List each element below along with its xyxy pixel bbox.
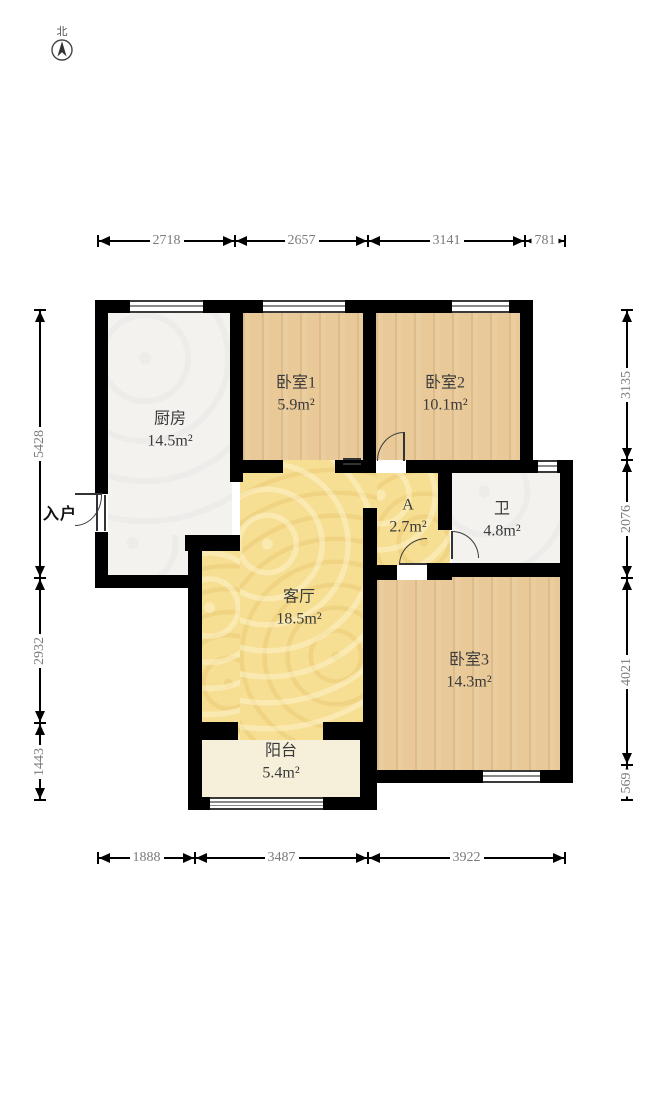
room-bedroom3-area: 14.3m² [446,671,491,693]
dim-arrow [99,236,110,246]
wall-segment [560,460,573,783]
dim-arrow [35,311,45,322]
compass-north-label: 北 [48,25,76,38]
wall-segment [438,473,452,530]
dim-arrow [622,461,632,472]
dim-value: 3135 [619,368,635,402]
wall-segment [427,563,452,580]
dim-tick [564,852,566,864]
dim-value: 1443 [32,745,48,779]
bedroom3-door-gap [397,565,427,580]
room-balcony-name: 阳台 [262,740,299,762]
dim-arrow [35,579,45,590]
room-bedroom2-name: 卧室2 [422,372,467,394]
room-hall-name: A [389,494,426,516]
wall-segment [185,535,240,551]
room-bedroom2-label: 卧室210.1m² [422,372,467,415]
dim-arrow [35,724,45,735]
room-balcony-area: 5.4m² [262,762,299,784]
dim-value: 4021 [619,655,635,689]
dim-arrow [622,448,632,459]
dim-value: 3487 [265,850,299,866]
dim-arrow [622,566,632,577]
dim-arrow [513,236,524,246]
room-bathroom-name: 卫 [483,498,520,520]
dim-value: 2076 [619,502,635,536]
wall-segment [230,300,243,482]
floor-plan-canvas: 北 入户 厨房14.5m²卧室15.9m²卧室210.1m²A2.7m²卫4.8… [0,0,664,1111]
wall-segment [95,575,190,588]
dim-arrow [356,236,367,246]
dim-tick [34,799,46,801]
room-living-area: 18.5m² [276,608,321,630]
dim-arrow [622,753,632,764]
room-kitchen-label: 厨房14.5m² [147,408,192,451]
wall-segment [95,300,108,496]
window [263,300,345,313]
room-living-label: 客厅18.5m² [276,586,321,629]
dim-value: 2718 [150,233,184,249]
wall-segment [188,722,238,740]
dim-value: 569 [619,769,635,796]
window [130,300,203,313]
dim-arrow [236,236,247,246]
dim-tick [621,799,633,801]
dim-arrow [622,311,632,322]
room-kitchen-lower-floor [108,535,190,575]
dim-value: 781 [532,233,559,249]
dim-value: 2932 [32,634,48,668]
dim-arrow [196,853,207,863]
room-balcony-label: 阳台5.4m² [262,740,299,783]
dim-value: 3922 [450,850,484,866]
dim-value: 1888 [130,850,164,866]
wall-segment [520,300,533,460]
room-bedroom2-area: 10.1m² [422,394,467,416]
window [483,770,540,783]
room-bathroom-area: 4.8m² [483,520,520,542]
bedroom1-door-leaf [343,458,361,465]
window [452,300,509,313]
entrance-label: 入户 [43,500,77,524]
wall-segment [188,551,202,810]
wall-segment [363,568,377,722]
dim-arrow [183,853,194,863]
wall-segment [438,563,560,577]
bedroom2-door-gap [376,460,406,473]
dim-arrow [622,579,632,590]
wall-segment [232,460,283,473]
room-bedroom3-label: 卧室314.3m² [446,649,491,692]
room-bedroom1-area: 5.9m² [276,394,316,416]
dim-arrow [35,788,45,799]
wall-segment [406,460,440,473]
room-bedroom1-name: 卧室1 [276,372,316,394]
dim-arrow [553,853,564,863]
dim-value: 3141 [430,233,464,249]
dim-arrow [35,566,45,577]
dim-arrow [369,853,380,863]
dim-arrow [99,853,110,863]
dim-tick [564,235,566,247]
dim-arrow [356,853,367,863]
dim-arrow [223,236,234,246]
room-bedroom1-label: 卧室15.9m² [276,372,316,415]
dim-arrow [369,236,380,246]
window [538,460,557,473]
dim-value: 2657 [285,233,319,249]
room-hall-label: A2.7m² [389,494,426,537]
room-hall-area: 2.7m² [389,516,426,538]
window [210,797,323,810]
room-kitchen-area: 14.5m² [147,430,192,452]
wall-segment [360,722,377,797]
compass-icon [50,38,74,62]
wall-segment [377,770,573,783]
compass: 北 [48,25,76,67]
room-bathroom-label: 卫4.8m² [483,498,520,541]
room-living-name: 客厅 [276,586,321,608]
room-living-west-floor [202,551,240,740]
room-bedroom3-name: 卧室3 [446,649,491,671]
wall-segment [363,508,377,568]
wall-segment [363,300,376,473]
room-kitchen-name: 厨房 [147,408,192,430]
dim-arrow [35,711,45,722]
dim-value: 5428 [32,427,48,461]
